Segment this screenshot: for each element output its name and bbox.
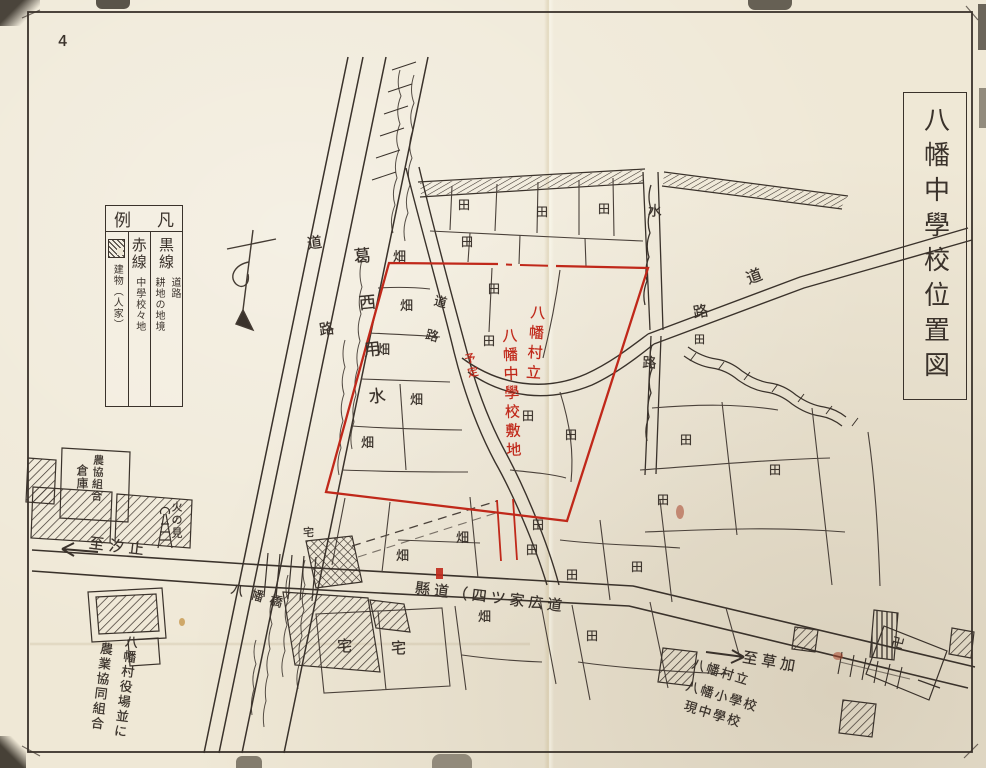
paddy-label: 田 [526, 544, 540, 556]
legend-header-left: 例 [114, 206, 131, 231]
field-label: 畑 [478, 611, 493, 624]
legend-term: 黒線 [156, 237, 177, 271]
paddy-label: 田 [769, 464, 783, 476]
coop-warehouse-label: 農協組合 [90, 454, 103, 503]
paddy-label: 田 [565, 429, 579, 441]
paddy-label: 田 [483, 335, 497, 347]
hatch-box-icon [108, 239, 125, 258]
legend-box: 例 凡 黒線 道路 耕地の地境 赤線 中學校々地 建物（人家） [105, 205, 183, 407]
paddy-label: 田 [680, 434, 694, 446]
paddy-label: 田 [631, 561, 645, 573]
coop-warehouse-label: 倉庫 [76, 464, 88, 490]
paddy-label: 田 [458, 199, 472, 211]
paddy-label: 田 [536, 206, 550, 218]
paddy-label: 田 [532, 519, 546, 531]
house-plot-label: 宅 [391, 641, 408, 656]
page-number: 4 [58, 34, 70, 49]
paddy-label: 田 [522, 410, 536, 422]
house-plot-label: 宅 [337, 639, 354, 654]
prefectural-road [32, 550, 975, 689]
legend-desc: 道路 [167, 277, 182, 332]
paddy-label: 田 [566, 569, 580, 581]
map-title-box: 八幡中學校位置図 [903, 92, 967, 400]
legend-header-right: 凡 [157, 206, 174, 231]
fire-lookout-label: 火の見 [171, 501, 182, 540]
planned-access-road-red [497, 499, 517, 561]
legend-col-building: 建物（人家） [106, 232, 129, 406]
field-label: 畑 [393, 251, 408, 264]
legend-term: 赤線 [129, 237, 150, 271]
house-plot-label: 宅 [303, 527, 316, 538]
legend-desc: 建物（人家） [109, 264, 124, 330]
school-site-label-red: 八幡村立 [524, 304, 545, 385]
field-label: 畑 [410, 394, 425, 407]
map-title: 八幡中學校位置図 [917, 106, 954, 386]
field-label: 畑 [396, 550, 411, 563]
legend-col-red-line: 赤線 中學校々地 [129, 232, 152, 406]
legend-col-black-line: 黒線 道路 耕地の地境 [151, 232, 182, 406]
scanned-map-page: { "page": { "number": "4" }, "title_box"… [0, 0, 986, 768]
field-label: 畑 [377, 344, 392, 357]
red-smudges [179, 505, 843, 660]
paddy-label: 田 [461, 236, 475, 248]
field-label: 畑 [456, 532, 471, 545]
paddy-label: 田 [586, 630, 600, 642]
legend-header: 例 凡 [106, 206, 182, 232]
paddy-label: 田 [657, 494, 671, 506]
legend-desc: 中學校々地 [132, 277, 147, 332]
stream [684, 347, 858, 426]
north-levee-band [418, 169, 848, 209]
paddy-label: 田 [694, 334, 707, 345]
paddy-label: 田 [598, 203, 612, 215]
school-site-label-red: 八幡中學校敷地 [501, 327, 521, 460]
field-label: 畑 [361, 437, 376, 450]
paddy-label: 田 [488, 283, 502, 295]
field-label: 畑 [400, 300, 415, 313]
pole-marker-icon [227, 230, 276, 330]
northeast-road-label: 路 [692, 303, 711, 321]
legend-desc: 耕地の地境 [151, 277, 166, 332]
